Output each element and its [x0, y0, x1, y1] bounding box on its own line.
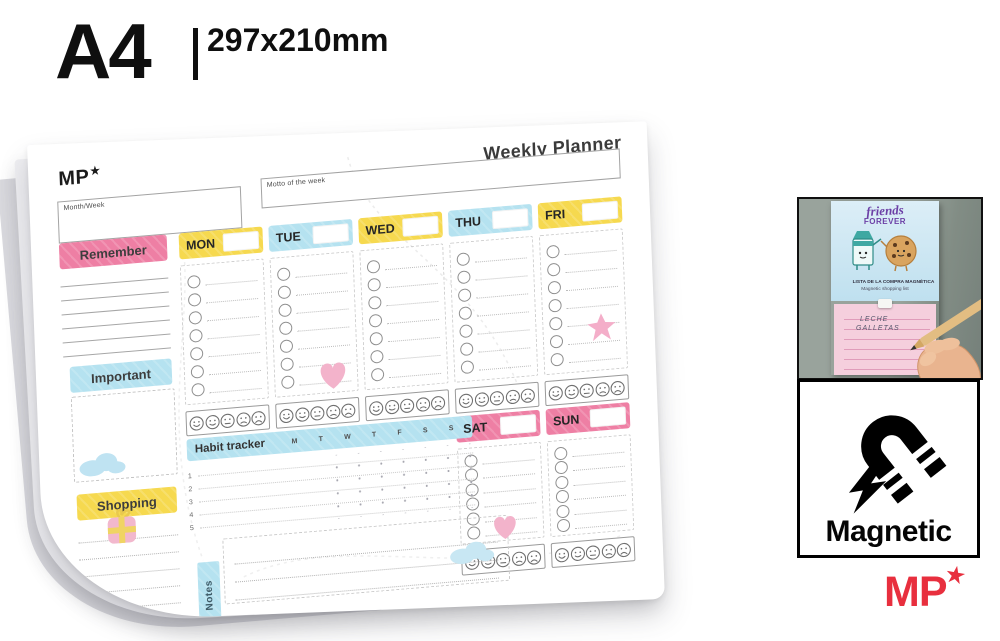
task-list — [547, 434, 634, 537]
task-line — [297, 326, 349, 331]
task-line — [477, 311, 529, 316]
habit-day-letter: W — [344, 433, 351, 441]
mood-face-icon — [251, 409, 267, 426]
task-line — [569, 357, 621, 362]
mood-rating-row — [551, 536, 636, 568]
cookie — [881, 236, 916, 271]
mood-rating-row — [275, 397, 360, 429]
mood-rating-row — [185, 404, 270, 436]
magnetic-badge: Magnetic — [797, 379, 980, 558]
footer-brand-text: MP — [884, 568, 947, 616]
mood-rating-row — [365, 389, 450, 421]
day-column-sun: SUN — [546, 402, 637, 609]
task-line — [575, 524, 627, 529]
important-label: Important — [91, 366, 151, 386]
habit-day-letter: S — [423, 427, 428, 434]
mood-face-icon — [548, 384, 564, 401]
cloud-icon — [78, 447, 127, 477]
mood-face-icon — [511, 550, 527, 567]
habit-day-letter: F — [397, 429, 402, 436]
task-circle — [191, 382, 204, 396]
task-line — [478, 347, 530, 352]
task-circle — [549, 316, 562, 330]
mood-face-icon — [341, 402, 357, 419]
task-circle — [554, 446, 567, 460]
remember-label: Remember — [79, 242, 147, 263]
task-circle — [458, 288, 471, 302]
day-header: SUN — [546, 402, 631, 435]
mood-face-icon — [204, 413, 220, 430]
task-circle — [279, 321, 292, 335]
mood-face-icon — [569, 545, 585, 562]
date-box — [500, 414, 537, 435]
mood-rating-row — [545, 374, 630, 406]
format-label: A4 — [55, 6, 149, 97]
dimensions-label: 297x210mm — [207, 22, 388, 59]
habit-dot-grid — [317, 443, 475, 520]
mood-face-icon — [399, 397, 415, 414]
task-line — [296, 290, 348, 295]
task-line — [476, 275, 528, 280]
notes-label: Notes — [203, 579, 215, 610]
task-circle — [548, 280, 561, 294]
day-label: FRI — [542, 207, 566, 223]
task-line — [476, 293, 528, 298]
weekly-planner-page: MP★ Weekly Planner Month/Week Motto of t… — [27, 121, 665, 622]
motto-field: Motto of the week — [261, 148, 621, 208]
magnetic-label: Magnetic — [800, 515, 977, 549]
task-circle — [547, 262, 560, 276]
task-line — [389, 354, 441, 359]
gift-icon — [103, 506, 140, 549]
heart-icon — [316, 358, 351, 393]
mood-face-icon — [585, 543, 601, 560]
task-circle — [367, 277, 380, 291]
task-circle — [550, 334, 563, 348]
lightning-icon — [849, 460, 886, 514]
month-week-label: Month/Week — [63, 202, 104, 212]
day-header: TUE — [268, 219, 353, 252]
mood-face-icon — [220, 412, 236, 429]
day-column-tue: TUE — [268, 219, 359, 426]
task-line — [565, 267, 617, 272]
habit-row-number: 5 — [190, 524, 200, 532]
task-circle — [281, 375, 294, 389]
planner-content: MP★ Weekly Planner Month/Week Motto of t… — [47, 121, 646, 622]
product-photo: friends FOREVER — [797, 197, 983, 380]
task-circle — [369, 313, 382, 327]
task-line — [210, 387, 262, 392]
notes-banner: Notes — [197, 561, 221, 623]
habit-row-number: 3 — [189, 498, 199, 506]
mood-face-icon — [384, 398, 400, 415]
magnet-icon — [828, 388, 956, 516]
habit-day-letter: S — [449, 424, 454, 431]
important-header: Important — [70, 358, 173, 393]
task-circle — [555, 461, 568, 475]
mood-face-icon — [505, 388, 521, 405]
mood-face-icon — [601, 542, 617, 559]
task-circle — [368, 295, 381, 309]
day-label: TUE — [273, 229, 301, 245]
habit-day-letter: M — [291, 438, 297, 445]
task-line — [207, 315, 259, 320]
task-line — [389, 372, 441, 377]
task-list — [449, 236, 538, 383]
day-label: SUN — [550, 412, 580, 428]
task-circle — [187, 274, 200, 288]
mood-face-icon — [554, 546, 570, 563]
day-header: THU — [448, 204, 533, 237]
mood-face-icon — [473, 390, 489, 407]
task-circle — [277, 267, 290, 281]
task-circle — [550, 352, 563, 366]
task-line — [208, 351, 260, 356]
task-circle — [190, 346, 203, 360]
mood-face-icon — [520, 386, 536, 403]
milk-carton — [853, 231, 881, 270]
task-circle — [280, 357, 293, 371]
day-label: MON — [183, 236, 216, 253]
header-divider — [193, 28, 198, 80]
mood-face-icon — [278, 407, 294, 424]
task-list — [359, 243, 448, 390]
mood-face-icon — [325, 403, 341, 420]
mood-face-icon — [309, 404, 325, 421]
habit-row-number: 1 — [188, 472, 198, 480]
caption-es: LISTA DE LA COMPRA MAGNÉTICA — [853, 279, 918, 284]
date-box — [402, 216, 439, 237]
mood-face-icon — [594, 380, 610, 397]
footer-brand-logo: MP★ — [884, 568, 947, 617]
task-circle — [460, 342, 473, 356]
mood-face-icon — [526, 548, 542, 565]
task-circle — [367, 259, 380, 273]
star-icon — [586, 311, 617, 343]
task-circle — [459, 306, 472, 320]
task-line — [567, 303, 619, 308]
hand-with-pencil — [864, 289, 983, 380]
task-circle — [370, 349, 383, 363]
mood-face-icon — [579, 382, 595, 399]
card-top: friends FOREVER — [831, 201, 939, 301]
habit-tracker-title: Habit tracker — [195, 438, 266, 456]
task-circle — [557, 519, 570, 533]
date-box — [223, 231, 260, 252]
day-header: WED — [358, 211, 443, 244]
brand-logo-text: MP — [58, 166, 90, 191]
mood-face-icon — [368, 399, 384, 416]
task-line — [565, 249, 617, 254]
mood-face-icon — [235, 410, 251, 427]
day-label: WED — [362, 221, 395, 238]
day-column-mon: MON — [179, 226, 270, 433]
task-line — [209, 369, 261, 374]
task-circle — [278, 285, 291, 299]
task-line — [385, 264, 437, 269]
motto-label: Motto of the week — [267, 177, 326, 189]
task-circle — [189, 310, 202, 324]
mood-face-icon — [616, 541, 632, 558]
important-box — [71, 388, 178, 483]
task-line — [388, 336, 440, 341]
task-circle — [278, 303, 291, 317]
task-line — [387, 318, 439, 323]
date-box — [312, 223, 349, 244]
task-line — [566, 285, 618, 290]
task-circle — [459, 324, 472, 338]
day-column-fri: FRI — [538, 196, 629, 403]
mood-face-icon — [563, 383, 579, 400]
task-line — [475, 257, 527, 262]
habit-row-number: 2 — [188, 485, 198, 493]
task-line — [206, 298, 258, 303]
mood-face-icon — [458, 392, 474, 409]
brand-logo-star-icon: ★ — [90, 165, 101, 178]
task-list — [180, 258, 269, 405]
task-list — [539, 228, 628, 375]
habit-row-number: 4 — [189, 511, 199, 519]
day-header: FRI — [538, 196, 623, 229]
brand-logo: MP★ — [58, 164, 101, 192]
task-line — [386, 300, 438, 305]
day-column-thu: THU — [448, 204, 539, 411]
task-circle — [555, 475, 568, 489]
product-sheet: A4 297x210mm MP★ Weekly Planner Month/We… — [0, 0, 1000, 641]
habit-day-letter: T — [372, 431, 377, 438]
task-line — [208, 333, 260, 338]
day-column-wed: WED — [358, 211, 449, 418]
mood-rating-row — [455, 382, 540, 414]
task-circle — [189, 328, 202, 342]
task-circle — [280, 339, 293, 353]
milk-and-cookie-illustration — [839, 227, 931, 273]
task-line — [386, 282, 438, 287]
task-circle — [546, 244, 559, 258]
task-circle — [371, 367, 384, 381]
cloud-icon — [449, 536, 496, 566]
task-line — [479, 365, 531, 370]
habit-day-letter: T — [319, 435, 324, 442]
task-line — [478, 329, 530, 334]
task-circle — [548, 298, 561, 312]
date-box — [590, 407, 627, 428]
task-circle — [191, 364, 204, 378]
task-line — [297, 308, 349, 313]
footer-brand-star-icon: ★ — [944, 562, 966, 590]
mood-face-icon — [294, 405, 310, 422]
task-circle — [461, 360, 474, 374]
task-circle — [457, 252, 470, 266]
task-circle — [369, 331, 382, 345]
mood-face-icon — [189, 414, 205, 431]
mood-face-icon — [430, 394, 446, 411]
task-circle — [556, 504, 569, 518]
date-box — [492, 208, 529, 229]
task-circle — [556, 490, 569, 504]
remember-lines — [60, 264, 171, 357]
task-circle — [457, 270, 470, 284]
mood-face-icon — [489, 389, 505, 406]
task-line — [295, 272, 347, 277]
task-circle — [188, 292, 201, 306]
mood-face-icon — [610, 379, 626, 396]
day-header: MON — [179, 226, 264, 259]
task-line — [206, 280, 258, 285]
date-box — [582, 201, 619, 222]
mood-face-icon — [415, 395, 431, 412]
task-line — [298, 344, 350, 349]
day-label: THU — [452, 214, 481, 230]
